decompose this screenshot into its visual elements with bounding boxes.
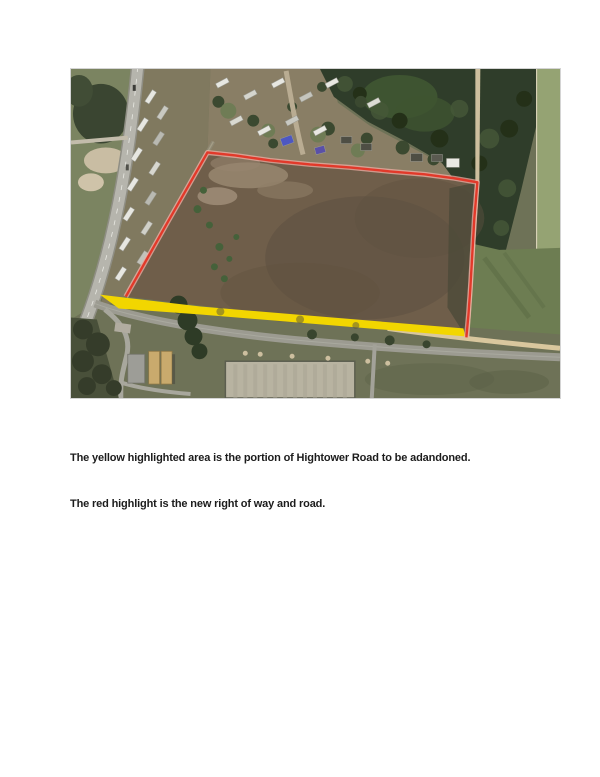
document-page: The yellow highlighted area is the porti… bbox=[0, 0, 600, 777]
caption-yellow-highlight: The yellow highlighted area is the porti… bbox=[70, 451, 550, 465]
caption-red-highlight: The red highlight is the new right of wa… bbox=[70, 497, 550, 511]
aerial-map-svg bbox=[71, 69, 560, 398]
aerial-map-image bbox=[70, 68, 561, 399]
